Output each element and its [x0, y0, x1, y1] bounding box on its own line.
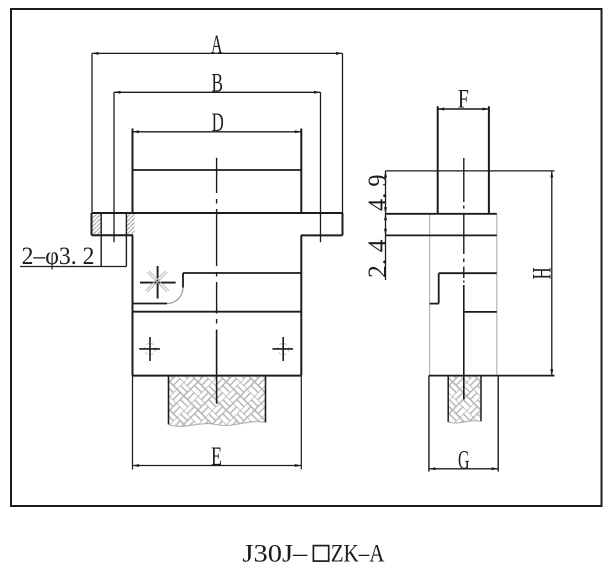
svg-text:H: H — [527, 267, 556, 279]
svg-text:2–φ3. 2: 2–φ3. 2 — [22, 241, 95, 270]
svg-text:B: B — [212, 68, 224, 97]
svg-text:ZK–A: ZK–A — [331, 539, 385, 568]
svg-text:F: F — [458, 85, 469, 114]
svg-text:D: D — [212, 108, 224, 137]
svg-text:G: G — [458, 446, 470, 475]
svg-text:E: E — [211, 442, 222, 471]
svg-text:A: A — [211, 30, 223, 59]
svg-text:2. 4: 2. 4 — [363, 239, 392, 278]
svg-text:J30J–: J30J– — [242, 539, 307, 568]
svg-text:4. 9: 4. 9 — [363, 174, 392, 211]
